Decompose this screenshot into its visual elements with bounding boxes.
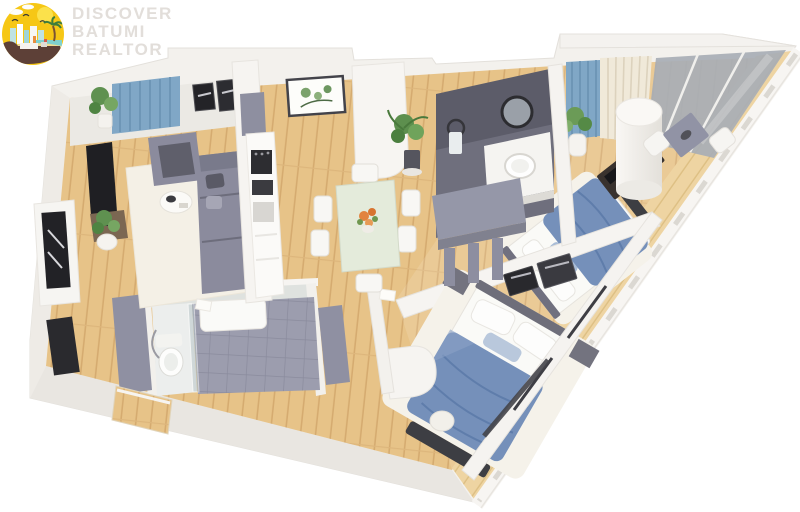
balcony-awning: [560, 34, 796, 48]
floor-magazine: [195, 299, 212, 311]
dining-chair: [402, 190, 420, 216]
brand-line-3: REALTOR: [72, 40, 163, 59]
toilet-tank: [156, 333, 183, 348]
brand-line-2: BATUMI: [72, 22, 146, 41]
table-decor: [166, 196, 176, 203]
microwave: [252, 180, 273, 195]
botanical-art-frame: [287, 76, 345, 116]
dishwasher: [253, 202, 274, 222]
wall-art-frame: [193, 83, 216, 111]
closet-leg: [468, 243, 479, 283]
throw-pillow: [206, 196, 222, 209]
wall-cabinet: [240, 92, 266, 136]
logo-badge: [2, 3, 64, 65]
dining-chair: [356, 274, 382, 292]
dining-chair: [398, 226, 416, 252]
screenshot-canvas: DISCOVER BATUMI REALTOR: [0, 0, 800, 512]
table-book: [179, 203, 188, 208]
floor-plan-image: DISCOVER BATUMI REALTOR: [0, 0, 800, 512]
armchair: [148, 132, 202, 186]
pouf-stool: [430, 411, 454, 431]
tv-screen-wall: [86, 142, 117, 216]
washbasin-bowl: [511, 159, 529, 173]
cloud-icon: [9, 9, 23, 15]
dining-chair: [314, 196, 332, 222]
sun-icon: [37, 7, 53, 23]
toilet-seat: [164, 353, 178, 371]
cloud-icon: [22, 5, 34, 10]
hand-towel: [449, 132, 462, 154]
brand-line-1: DISCOVER: [72, 4, 173, 23]
armchair-seat: [158, 142, 195, 178]
throw-pillow: [205, 173, 225, 189]
coffee-table: [160, 191, 192, 213]
brand-wordmark: DISCOVER BATUMI REALTOR: [72, 4, 173, 59]
pier-building: [20, 43, 38, 49]
plant-pot: [404, 150, 420, 170]
closet-leg: [492, 238, 503, 280]
closet-leg: [444, 248, 455, 286]
dining-chair: [352, 164, 378, 182]
dining-chair: [311, 230, 329, 256]
floor-paper: [379, 289, 395, 301]
round-mirror: [502, 97, 532, 127]
